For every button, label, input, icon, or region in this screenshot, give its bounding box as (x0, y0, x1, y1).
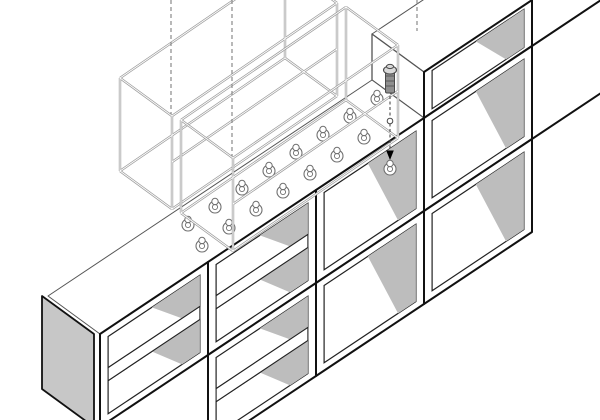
hex-bolt-icon (384, 64, 397, 93)
washer-icon (387, 118, 393, 124)
wireframe-edge (285, 0, 337, 3)
assembly-diagram-stage (0, 0, 600, 420)
shelf-assembly-diagram (0, 0, 600, 420)
